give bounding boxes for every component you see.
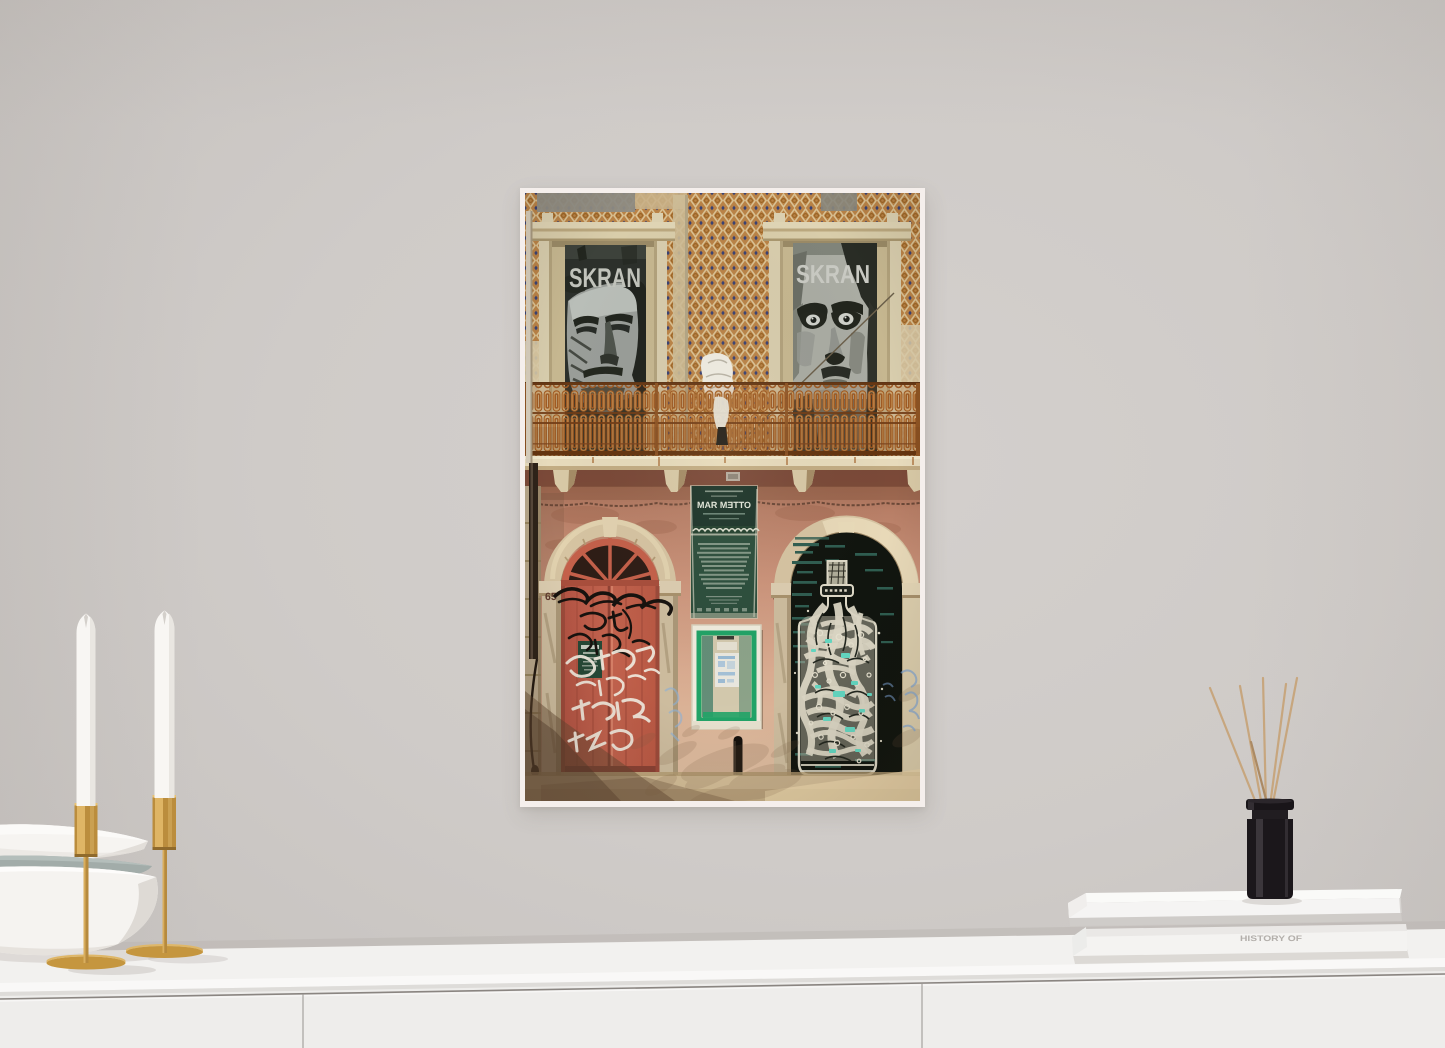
svg-text:HISTORY OF: HISTORY OF — [1240, 934, 1302, 943]
